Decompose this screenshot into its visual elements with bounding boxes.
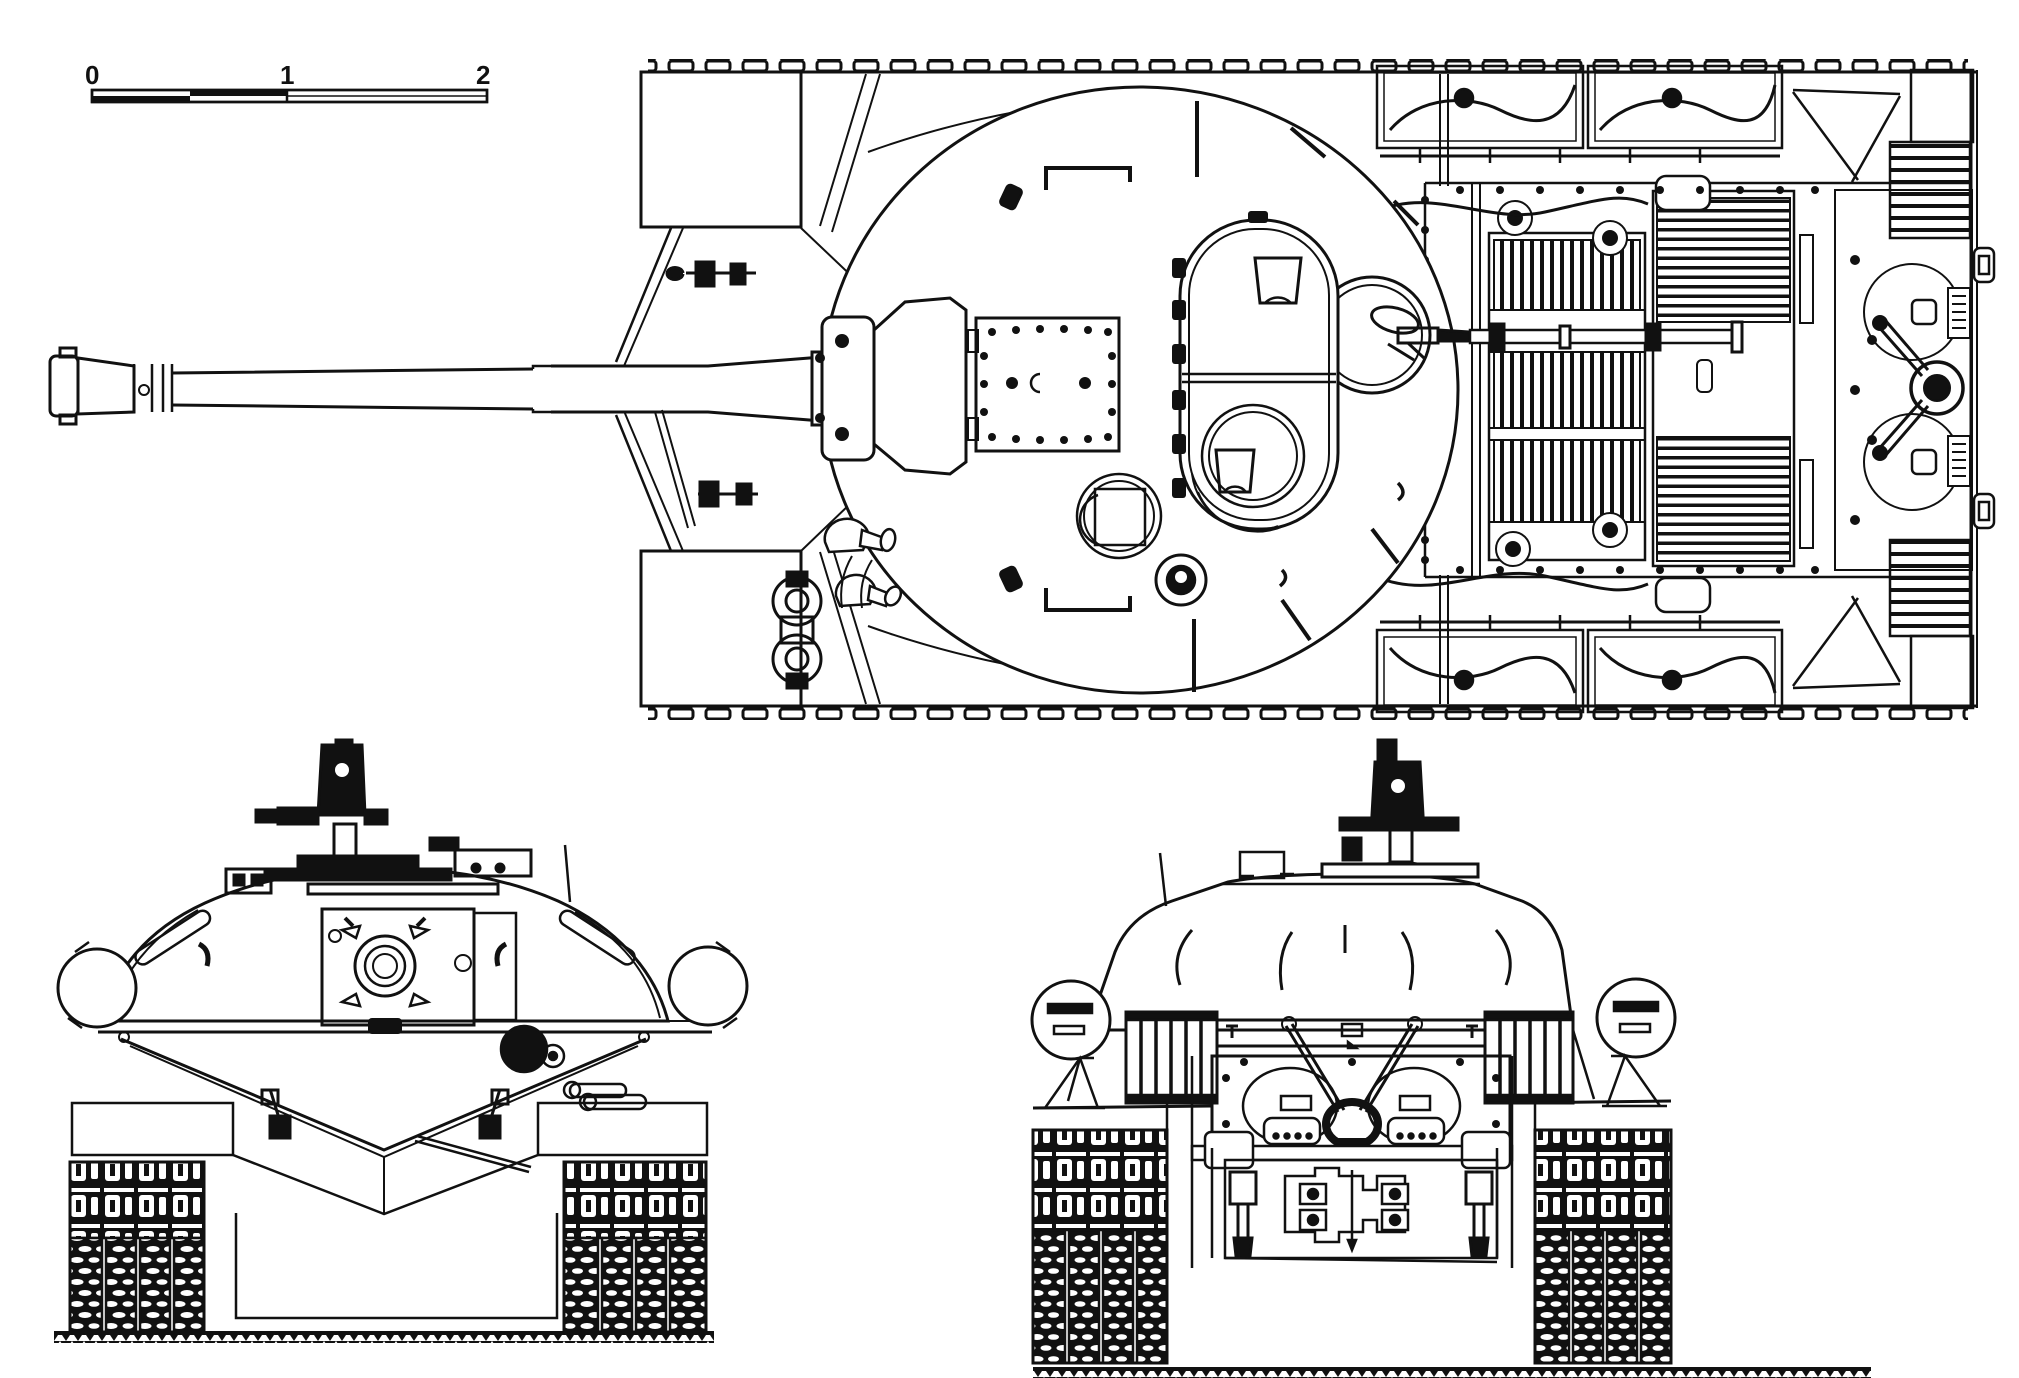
svg-text:0: 0: [85, 60, 99, 90]
svg-text:2: 2: [476, 60, 490, 90]
svg-text:1: 1: [280, 60, 294, 90]
